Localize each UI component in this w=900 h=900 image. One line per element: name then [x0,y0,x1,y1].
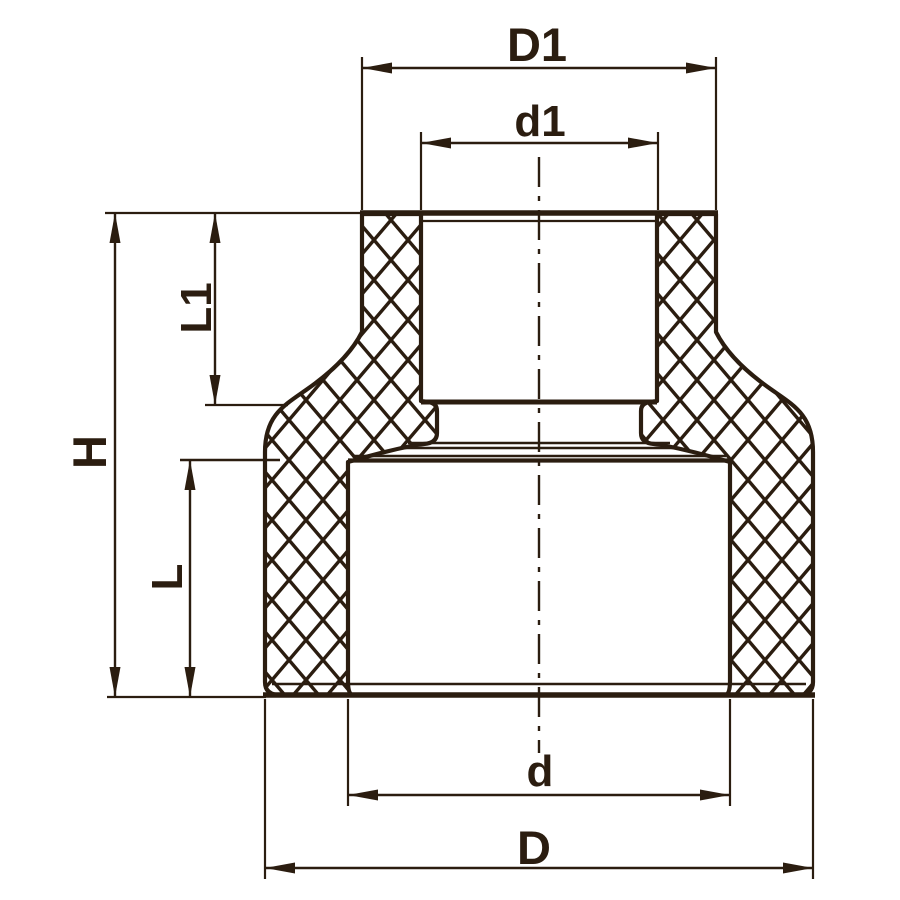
arrowhead-left [421,138,451,149]
arrowhead-top [185,460,196,490]
arrowhead-right [686,63,716,74]
arrowhead-right [700,790,730,801]
dimension-L1: L1 [172,213,288,405]
dim-label-D1: D1 [507,18,567,71]
arrowhead-left [265,863,295,874]
arrowhead-top [110,213,121,243]
arrowhead-left [362,63,392,74]
arrowhead-top [210,213,221,243]
arrowhead-right [628,138,658,149]
drawing-canvas: D1 d1 H L1 L d [0,0,900,900]
technical-drawing: D1 d1 H L1 L d [0,0,900,900]
dim-label-L1: L1 [172,282,221,333]
dim-label-L: L [143,564,192,591]
right-wall-section [641,214,813,695]
left-wall-section [265,214,437,695]
arrowhead-bottom [185,667,196,697]
dim-label-d: d [527,747,554,796]
arrowhead-right [783,863,813,874]
dimension-d1: d1 [421,97,658,210]
arrowhead-bottom [210,375,221,405]
arrowhead-left [348,790,378,801]
dim-label-d1: d1 [514,97,565,146]
dimension-L: L [143,460,280,697]
arrowhead-bottom [110,667,121,697]
dim-label-H: H [63,435,116,469]
dim-label-D: D [517,821,551,874]
